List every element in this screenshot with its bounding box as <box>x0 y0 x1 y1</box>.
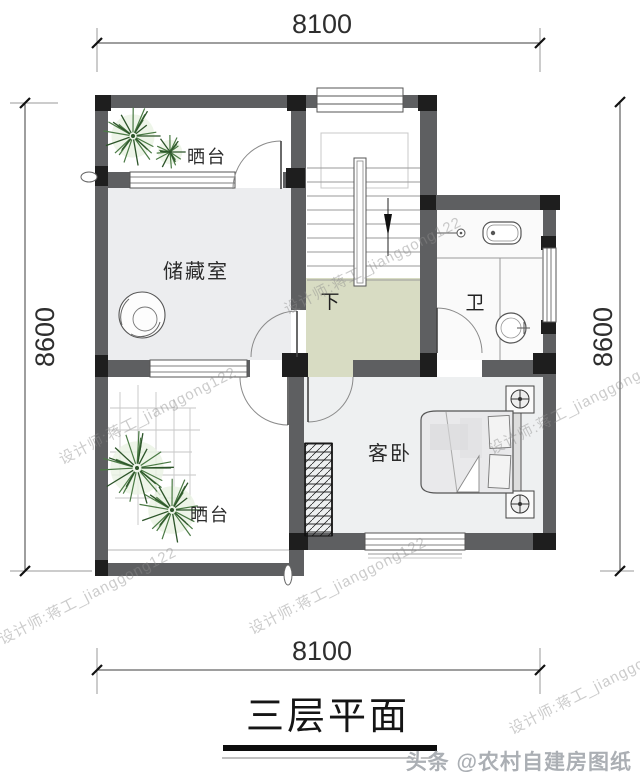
downspout <box>284 565 292 585</box>
plant-terrace-top-small <box>156 135 186 168</box>
dim-right-value: 8600 <box>588 307 618 367</box>
nightstand-top <box>506 386 534 413</box>
terrace-storage-window <box>130 172 235 188</box>
dim-top-value: 8100 <box>292 9 352 39</box>
watermark-text: 设计师:蒋工_jianggong122 <box>0 544 179 648</box>
bathtub <box>483 222 521 244</box>
bathroom-east-window <box>543 248 556 322</box>
dimension-top: 8100 <box>92 9 545 72</box>
stair-down-arrow-icon <box>384 214 392 236</box>
floor-plan-drawing: 晒台 储藏室 下 卫 客卧 晒台 8100 8100 8600 8600 <box>0 0 640 783</box>
brand-watermark: 头条 @农村自建房图纸 头条 @农村自建房图纸 <box>406 750 634 776</box>
pillow <box>488 454 511 488</box>
wall-vent <box>81 172 97 182</box>
title-block: 三层平面 <box>222 696 438 758</box>
label-guest-bedroom: 客卧 <box>368 442 412 465</box>
page-title: 三层平面 <box>246 696 410 738</box>
label-terrace-top: 晒台 <box>187 147 227 167</box>
brand-text: 头条 @农村自建房图纸 <box>406 750 632 774</box>
label-bathroom: 卫 <box>465 293 484 314</box>
floor-plan-page: 晒台 储藏室 下 卫 客卧 晒台 8100 8100 8600 8600 <box>0 0 640 783</box>
dimension-bottom: 8100 <box>92 636 545 694</box>
dimension-right: 8600 <box>588 97 634 576</box>
label-terrace-bottom: 晒台 <box>190 505 230 525</box>
armchair <box>119 292 165 338</box>
stairwell-window <box>317 88 403 112</box>
terrace-bottom-door <box>240 377 288 425</box>
watermark-text: 设计师:蒋工_jianggong122 <box>507 634 640 738</box>
label-storage: 储藏室 <box>163 260 229 283</box>
nightstand-bottom <box>506 491 534 518</box>
plant-terrace-top-large <box>103 108 160 166</box>
dim-left-value: 8600 <box>30 307 60 367</box>
dimension-left: 8600 <box>10 98 92 576</box>
trellis-rack <box>305 443 332 536</box>
dim-bottom-value: 8100 <box>292 636 352 666</box>
